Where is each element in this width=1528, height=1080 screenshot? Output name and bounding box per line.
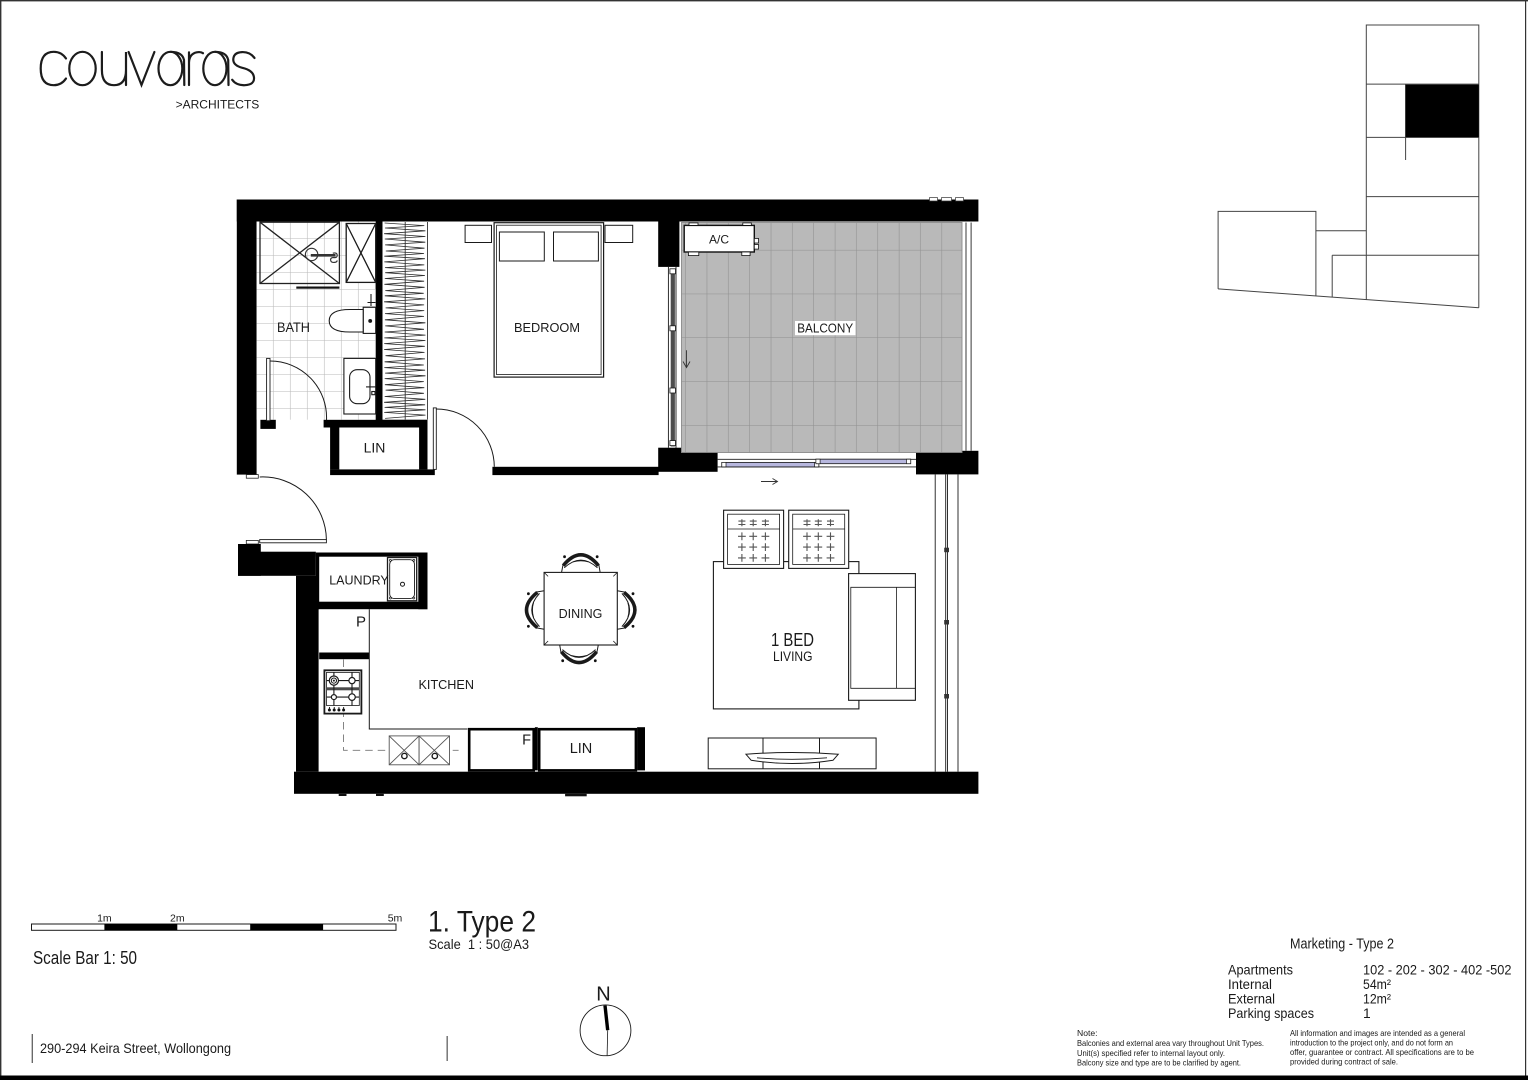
svg-text:Marketing - Type 2: Marketing - Type 2 xyxy=(1290,937,1394,953)
svg-text:All information and images are: All information and images are intended … xyxy=(1290,1028,1465,1038)
svg-text:1m: 1m xyxy=(97,913,112,925)
svg-text:LAUNDRY: LAUNDRY xyxy=(329,574,389,588)
svg-text:54m²: 54m² xyxy=(1363,977,1391,992)
svg-text:offer, guarantee or contract.: offer, guarantee or contract. All specif… xyxy=(1290,1047,1474,1057)
svg-text:KITCHEN: KITCHEN xyxy=(419,677,475,692)
svg-text:102 - 202 - 302 - 402 -502: 102 - 202 - 302 - 402 -502 xyxy=(1363,963,1512,978)
svg-text:LIN: LIN xyxy=(364,440,386,456)
svg-text:BALCONY: BALCONY xyxy=(797,320,853,335)
svg-text:P: P xyxy=(356,614,366,631)
svg-text:LIN: LIN xyxy=(570,741,593,757)
svg-text:BEDROOM: BEDROOM xyxy=(514,320,580,335)
svg-text:BATH: BATH xyxy=(277,319,310,335)
svg-text:introduction to the project on: introduction to the project only, and do… xyxy=(1290,1038,1453,1048)
svg-text:DINING: DINING xyxy=(559,607,603,621)
svg-text:F: F xyxy=(522,733,531,749)
svg-text:Internal: Internal xyxy=(1228,977,1272,992)
svg-text:Apartments: Apartments xyxy=(1228,963,1293,978)
svg-text:Scale 1 : 50@A3: Scale 1 : 50@A3 xyxy=(429,936,530,952)
svg-text:1: 1 xyxy=(1363,1006,1371,1021)
svg-text:1 BED: 1 BED xyxy=(771,629,814,650)
svg-text:>ARCHITECTS: >ARCHITECTS xyxy=(176,98,260,112)
svg-text:LIVING: LIVING xyxy=(773,649,813,664)
svg-text:5m: 5m xyxy=(388,913,403,925)
svg-text:Scale Bar 1: 50: Scale Bar 1: 50 xyxy=(33,947,137,968)
svg-text:N: N xyxy=(596,984,610,1006)
svg-text:Parking spaces: Parking spaces xyxy=(1228,1006,1314,1021)
svg-text:provided during contract of sa: provided during contract of sale. xyxy=(1290,1057,1398,1067)
svg-text:12m²: 12m² xyxy=(1363,992,1391,1007)
svg-text:290-294 Keira Street, Wollongo: 290-294 Keira Street, Wollongong xyxy=(40,1040,231,1056)
svg-text:2m: 2m xyxy=(170,913,185,925)
svg-text:External: External xyxy=(1228,992,1275,1007)
svg-text:A/C: A/C xyxy=(709,233,729,247)
svg-text:1. Type 2: 1. Type 2 xyxy=(428,906,536,939)
svg-text:Note:: Note: xyxy=(1077,1028,1098,1038)
svg-text:Balconies and external area va: Balconies and external area vary through… xyxy=(1077,1038,1264,1048)
svg-text:Unit(s) specified refer to int: Unit(s) specified refer to internal layo… xyxy=(1077,1048,1225,1058)
svg-text:Balcony size and type are to b: Balcony size and type are to be clarifie… xyxy=(1077,1058,1241,1068)
